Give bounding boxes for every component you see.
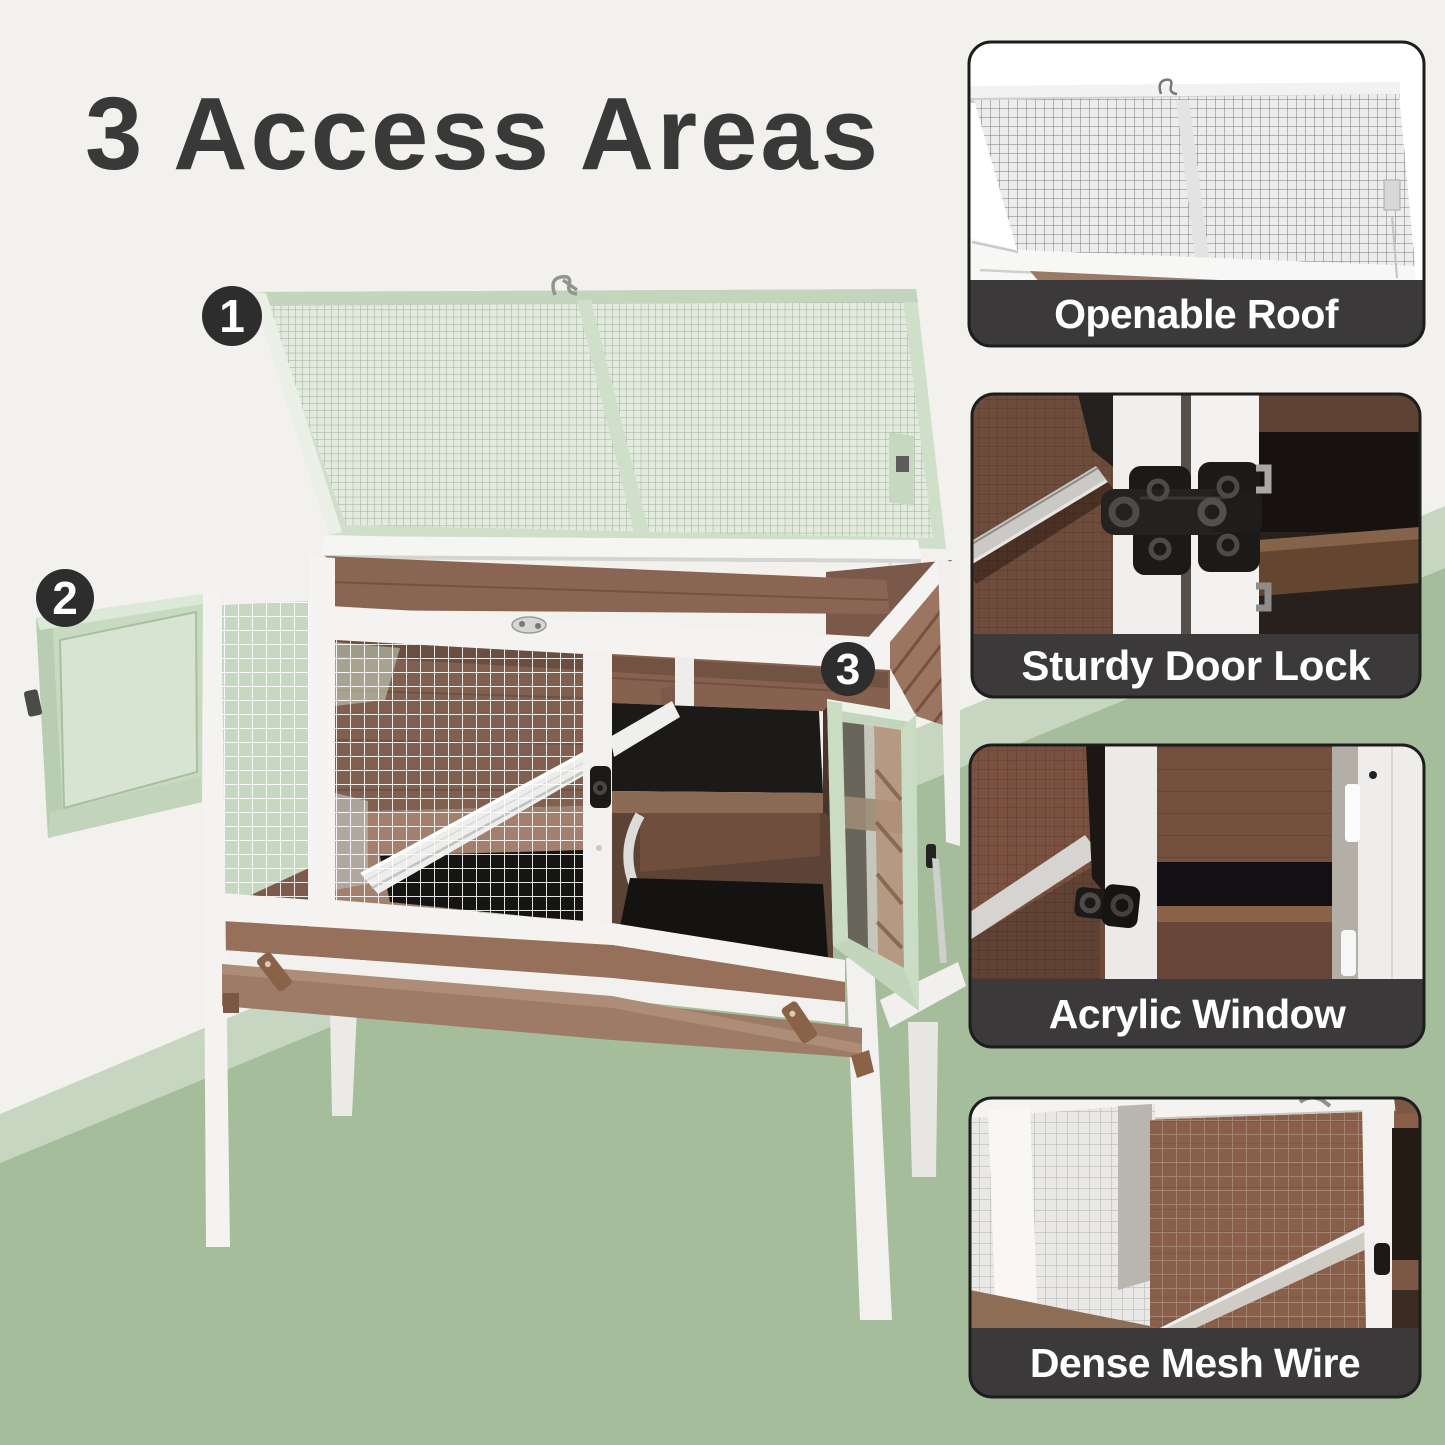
svg-text:1: 1 bbox=[219, 290, 245, 342]
svg-text:2: 2 bbox=[52, 572, 78, 624]
svg-text:3: 3 bbox=[836, 645, 860, 694]
svg-text:Sturdy Door Lock: Sturdy Door Lock bbox=[1021, 642, 1371, 689]
svg-text:Dense Mesh Wire: Dense Mesh Wire bbox=[1030, 1340, 1360, 1386]
svg-text:3 Access Areas: 3 Access Areas bbox=[85, 76, 881, 191]
svg-text:Openable Roof: Openable Roof bbox=[1054, 291, 1339, 337]
svg-text:Acrylic Window: Acrylic Window bbox=[1049, 991, 1346, 1037]
